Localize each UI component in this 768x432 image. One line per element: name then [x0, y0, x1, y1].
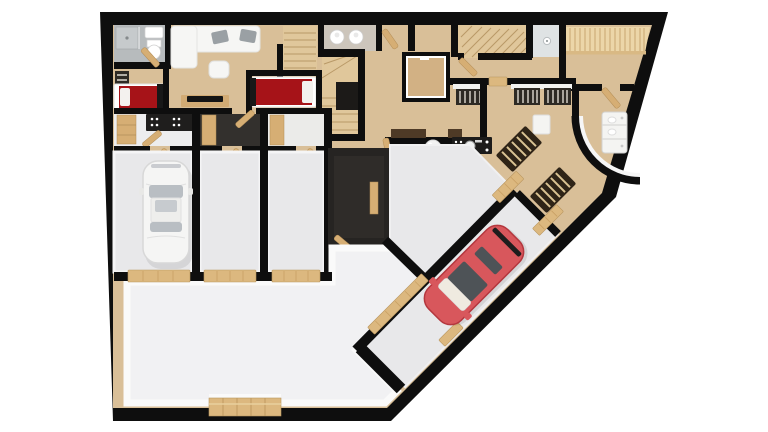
wardrobe [202, 115, 216, 145]
wardrobe-room-dark [200, 114, 260, 146]
bed-1-headboard [157, 84, 164, 110]
bathroom-top-left [114, 25, 171, 69]
wardrobe [270, 115, 284, 145]
bay-divider-wall [260, 108, 268, 281]
bed-2-pillow [302, 81, 313, 103]
elevator-floor [407, 57, 445, 97]
bench-white [533, 115, 550, 134]
faucet-icon [475, 140, 482, 143]
shower-drain-icon [125, 36, 128, 39]
elevator-shaft [402, 52, 450, 102]
tv [187, 96, 223, 102]
sink [145, 27, 163, 38]
door-threshold [489, 77, 507, 86]
bed-1-pillow [120, 88, 130, 106]
rear-window [150, 222, 182, 232]
garage-bay-thresholds [128, 270, 320, 282]
floor-plan-svg [0, 0, 768, 432]
sofa-left-arm [171, 26, 197, 68]
bed-2-headboard [250, 78, 256, 106]
sunroof [155, 200, 177, 212]
kitchenette-room [114, 114, 193, 148]
wc-bottom-wall [318, 49, 365, 57]
bathroom-right-wall [165, 25, 171, 64]
washer-column [602, 112, 627, 153]
radiator [511, 84, 542, 105]
stairwell-wall-bottom [316, 70, 322, 114]
wall-shelf [391, 129, 426, 138]
mirror [188, 188, 193, 195]
kitchenette [146, 114, 193, 131]
wc-right-wall [376, 25, 382, 51]
dark-storage-room [328, 148, 390, 258]
bathroom-bottom-wall [114, 62, 171, 69]
pouf [209, 61, 229, 78]
winder-right-wall [358, 48, 365, 140]
slat-wall [566, 27, 650, 53]
bedroom-2 [246, 70, 322, 114]
wardrobe [117, 115, 136, 144]
mirror [139, 188, 144, 195]
storage-shelf [370, 182, 378, 214]
radiator [541, 84, 573, 105]
garage-door-bottom [209, 394, 281, 416]
bedroom-1-right-wall [163, 68, 169, 114]
wall [114, 108, 232, 114]
stair-rail [277, 44, 283, 82]
shower-right-wall [559, 25, 566, 85]
garage-bay-2 [200, 152, 260, 272]
wardrobe-room-light [268, 114, 324, 146]
bay-divider-wall [192, 108, 200, 281]
floor-plan-screenshot [0, 0, 768, 432]
stair-void [336, 82, 358, 110]
bedroom-2-top-wall [246, 70, 322, 76]
wall-shelf [448, 129, 462, 138]
stairwell-wall-top [318, 25, 324, 51]
garage-bay-3 [268, 152, 324, 272]
white-car [139, 161, 193, 269]
windshield [149, 185, 183, 198]
